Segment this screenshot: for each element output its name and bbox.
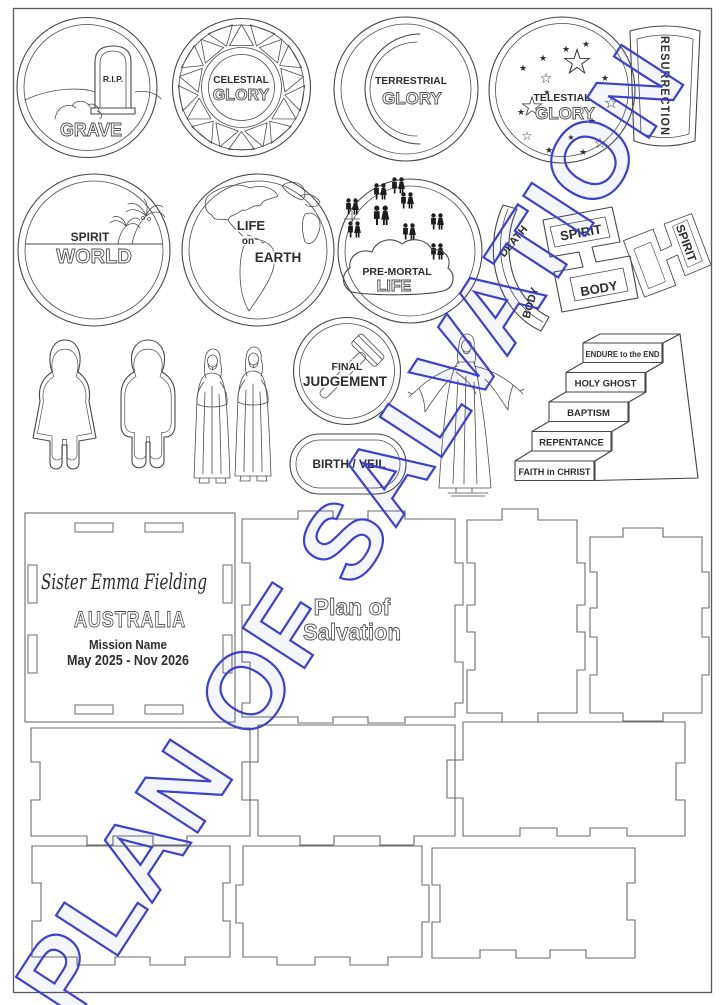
spirit-world-bottom-label: WORLD [56,246,132,268]
robed-men-figures [194,347,271,483]
grave-disc: R.I.P. GRAVE [17,18,161,158]
box-wall-panel [31,728,250,845]
star-filled-icon: ★ [539,54,547,64]
mission-dates: May 2025 - Nov 2026 [67,653,189,669]
star-filled-icon: ★ [545,146,553,156]
box-wall-panel [455,722,685,836]
spirit-body-piece-right: SPIRIT [621,212,715,299]
birth-veil-piece: BIRTH / VEIL [290,434,406,494]
grave-label: GRAVE [60,120,122,140]
star-filled-icon: ★ [519,64,527,74]
final-label: FINAL [332,361,363,373]
birth-veil-label: BIRTH / VEIL [312,457,385,471]
earth-continents-icon [205,182,320,311]
staircase: ENDURE to the END HOLY GHOST BAPTISM REP… [515,334,698,481]
celestial-glory-disc: CELESTIAL GLORY [173,19,311,157]
jesus-figure [408,334,524,496]
star-outline-icon: ☆ [540,71,553,87]
earth-label: EARTH [255,250,302,265]
country-label: AUSTRALIA [74,607,186,632]
step-baptism-label: BAPTISM [567,408,610,419]
star-filled-icon: ★ [567,133,574,142]
step-endure-label: ENDURE to the END [586,350,660,359]
judgement-label: JUDGEMENT [303,374,388,389]
mission-name-label: Mission Name [89,638,167,652]
death-arrow-piece: DEATH BODY [493,205,549,331]
star-filled-icon: ★ [562,45,570,55]
telestial-glory-disc: ☆ ☆ ☆ ☆ ☆ ☆ ★ ★ ★ ★ ★ ★ ★ ★ ★ ★ ★ TELEST… [489,17,635,163]
resurrection-label: RESURRECTION [658,36,670,136]
premortal-life-label: LIFE [377,278,412,295]
female-figure [33,340,96,469]
terrestrial-glory-disc: TERRESTRIAL GLORY [334,17,478,161]
step-repentance-label: REPENTANCE [539,438,604,449]
page-border [14,9,712,993]
final-judgement-disc: FINAL JUDGEMENT [294,318,401,425]
celestial-label: CELESTIAL [213,75,269,86]
spirit-world-disc: SPIRIT WORLD [18,174,170,326]
box-wall-panel [250,725,455,845]
terrestrial-glory-label: GLORY [382,89,442,108]
missionary-name: Sister Emma Fielding [41,570,207,594]
box-wall-panel [432,848,635,958]
celestial-glory-label: GLORY [213,87,270,104]
star-filled-icon: ★ [579,148,587,158]
box-side-panel [590,528,709,721]
life-label: LIFE [237,218,265,233]
template-drawing: R.I.P. GRAVE CELESTIAL GLORY TERRESTRIAL… [0,0,726,1005]
box-wall-panel [32,846,230,965]
telestial-label: TELESTIAL [533,92,591,104]
step-holy-ghost-label: HOLY GHOST [575,379,637,390]
plan-of-label: Plan of [314,594,391,620]
laser-cut-sheet: R.I.P. GRAVE CELESTIAL GLORY TERRESTRIAL… [0,0,726,1005]
box-side-panel [467,509,585,722]
spirit-right-label: SPIRIT [673,222,700,264]
box-wall-panel [236,846,429,965]
telestial-glory-label: GLORY [535,104,595,123]
star-filled-icon: ★ [517,108,525,118]
name-panel: Sister Emma Fielding AUSTRALIA Mission N… [25,513,235,722]
title-panel: Plan of Salvation [242,511,463,723]
premortal-life-disc: PRE-MORTAL LIFE [338,177,482,323]
terrestrial-label: TERRESTRIAL [375,75,448,87]
star-outline-icon: ☆ [522,129,533,143]
star-filled-icon: ★ [582,40,590,50]
people-pairs-icon [346,177,444,259]
star-outline-icon: ☆ [604,93,618,112]
star-outline-icon: ☆ [594,136,607,152]
step-faith-label: FAITH in CHRIST [519,467,591,477]
life-on-earth-disc: LIFE on EARTH [182,174,334,326]
spirit-body-piece: SPIRIT BODY [543,207,638,312]
resurrection-piece: RESURRECTION [630,26,700,146]
star-filled-icon: ★ [601,74,609,84]
body-label: BODY [579,278,619,299]
male-figure [121,340,175,468]
salvation-label: Salvation [303,619,401,645]
spirit-label: SPIRIT [559,221,603,243]
on-label: on [242,236,254,247]
spirit-world-top-label: SPIRIT [71,230,110,244]
premortal-label: PRE-MORTAL [362,266,432,278]
rip-label: R.I.P. [103,74,123,84]
death-body-label: BODY [521,285,542,320]
